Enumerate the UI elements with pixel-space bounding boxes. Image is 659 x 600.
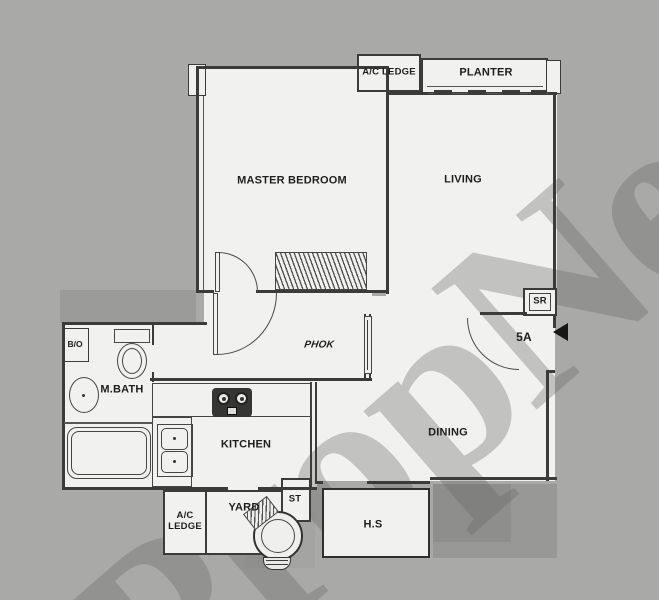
bathtub-icon <box>71 431 147 475</box>
pillar-right <box>546 60 561 94</box>
window-icon <box>502 90 520 94</box>
label-st: ST <box>289 495 302 506</box>
washing-machine-icon <box>261 519 295 553</box>
floor-plan-canvas: PropNex <box>0 0 659 600</box>
wardrobe-icon <box>275 252 367 290</box>
door-leaf <box>213 293 218 355</box>
window-icon <box>531 90 546 94</box>
wall <box>62 322 65 490</box>
wall <box>430 477 557 480</box>
label-ac-ledge-bottom-line1: A/C <box>177 510 194 521</box>
wall <box>152 372 154 382</box>
wall <box>150 487 228 490</box>
label-master-bedroom: MASTER BEDROOM <box>237 175 347 188</box>
label-yard: YARD <box>229 502 260 515</box>
wall <box>196 66 388 69</box>
label-ac-ledge-bottom: A/C LEDGE <box>168 511 202 533</box>
wall <box>196 66 199 292</box>
wall <box>315 481 323 484</box>
label-hall: PHOK <box>303 339 334 351</box>
room-living-floor <box>386 92 557 302</box>
room-hall-ext-floor <box>150 325 207 385</box>
kitchen-sink-icon <box>173 437 176 440</box>
wall <box>546 372 549 481</box>
wall <box>150 378 206 381</box>
label-sr: SR <box>533 297 547 308</box>
stove-icon <box>240 397 244 401</box>
wall <box>62 322 207 325</box>
label-dining: DINING <box>428 427 468 440</box>
wall <box>204 378 372 381</box>
door-leaf <box>215 252 220 292</box>
wall <box>386 66 389 294</box>
label-kitchen: KITCHEN <box>221 439 271 452</box>
stove-icon <box>222 397 226 401</box>
wall <box>152 325 154 345</box>
window-icon <box>468 90 486 94</box>
wall <box>367 481 430 484</box>
wall <box>62 487 152 490</box>
toilet-icon <box>114 329 150 343</box>
stove-icon <box>227 407 237 415</box>
label-living: LIVING <box>444 174 482 187</box>
toilet-icon <box>122 348 142 374</box>
planter-inner-line <box>427 86 543 87</box>
washbasin-icon <box>82 394 85 397</box>
exterior-void-bottom-right-dark <box>433 484 511 542</box>
label-ac-ledge-bottom-line2: LEDGE <box>168 521 202 532</box>
label-hs: H.S <box>364 519 383 532</box>
wall <box>258 487 317 490</box>
sliding-door-icon <box>367 320 368 370</box>
label-planter: PLANTER <box>459 67 512 80</box>
wall <box>196 290 214 293</box>
washing-machine-icon <box>266 564 288 565</box>
wall <box>553 92 556 290</box>
exterior-void-left <box>60 290 196 323</box>
wall <box>203 96 204 292</box>
wall <box>315 382 317 481</box>
wall-partition <box>64 422 152 424</box>
label-mbath: M.BATH <box>100 384 143 397</box>
entrance-door-wedge-icon <box>553 323 568 341</box>
kitchen-sink-icon <box>173 460 176 463</box>
wall <box>480 312 527 315</box>
window-icon <box>434 90 452 94</box>
label-bo: B/O <box>67 340 82 350</box>
washing-machine-icon <box>266 560 288 561</box>
label-ac-ledge-top: A/C LEDGE <box>362 68 416 79</box>
label-unit-number: 5A <box>516 331 532 345</box>
